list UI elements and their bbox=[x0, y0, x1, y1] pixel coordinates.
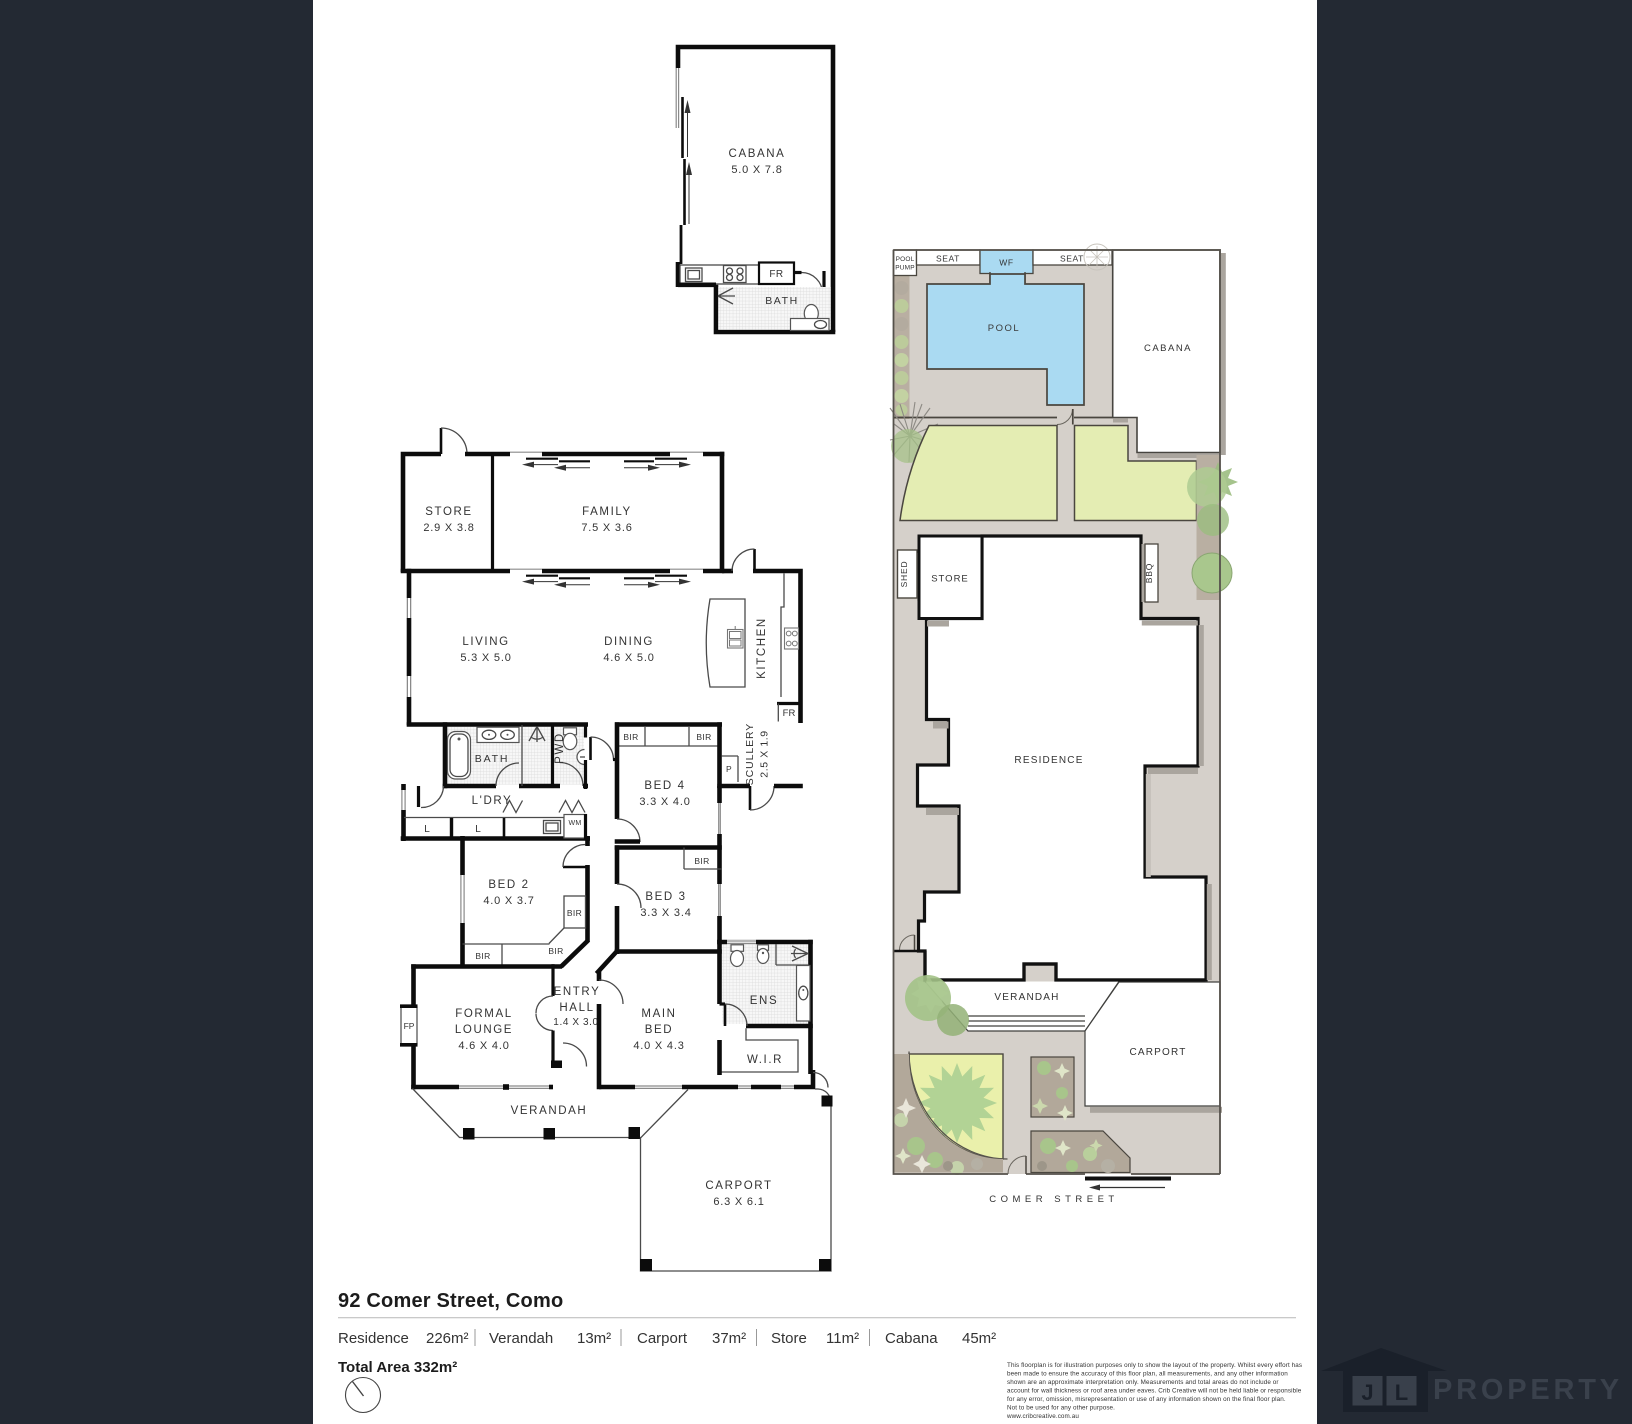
svg-text:Not to be used for any other p: Not to be used for any other purpose. bbox=[1007, 1405, 1115, 1412]
svg-text:2.9 X 3.8: 2.9 X 3.8 bbox=[423, 522, 474, 534]
svg-text:Verandah: Verandah bbox=[489, 1330, 553, 1347]
svg-text:BED 2: BED 2 bbox=[488, 879, 529, 891]
svg-text:This floorplan is for illustra: This floorplan is for illustration purpo… bbox=[1007, 1362, 1302, 1369]
svg-text:BED 3: BED 3 bbox=[645, 891, 686, 903]
svg-text:1.4 X 3.0: 1.4 X 3.0 bbox=[553, 1017, 598, 1028]
svg-text:DINING: DINING bbox=[604, 636, 654, 648]
svg-text:LOUNGE: LOUNGE bbox=[455, 1024, 513, 1036]
svg-text:PROPERTY: PROPERTY bbox=[1433, 1374, 1623, 1406]
svg-text:BIR: BIR bbox=[548, 946, 563, 956]
svg-text:WF: WF bbox=[999, 258, 1013, 268]
svg-text:HALL: HALL bbox=[559, 1002, 594, 1014]
svg-text:5.0 X 7.8: 5.0 X 7.8 bbox=[731, 164, 782, 176]
svg-text:STORE: STORE bbox=[931, 574, 969, 585]
svg-text:11m²: 11m² bbox=[826, 1330, 859, 1347]
svg-text:BATH: BATH bbox=[475, 753, 509, 765]
svg-text:BIR: BIR bbox=[567, 908, 582, 918]
svg-text:W.I.R: W.I.R bbox=[747, 1054, 783, 1066]
svg-text:5.3 X 5.0: 5.3 X 5.0 bbox=[460, 652, 511, 664]
svg-text:FR: FR bbox=[769, 269, 783, 280]
svg-text:BIR: BIR bbox=[475, 951, 490, 961]
svg-text:FORMAL: FORMAL bbox=[455, 1008, 513, 1020]
svg-text:BIR: BIR bbox=[623, 732, 638, 742]
svg-text:PWD: PWD bbox=[554, 732, 566, 764]
svg-text:3.3 X 4.0: 3.3 X 4.0 bbox=[639, 796, 690, 808]
svg-text:226m²: 226m² bbox=[426, 1330, 469, 1347]
svg-text:92 Comer Street, Como: 92 Comer Street, Como bbox=[338, 1290, 563, 1312]
svg-text:L: L bbox=[1395, 1380, 1408, 1405]
svg-text:L'DRY: L'DRY bbox=[472, 795, 513, 807]
svg-text:STORE: STORE bbox=[425, 506, 472, 518]
svg-text:Residence: Residence bbox=[338, 1330, 409, 1347]
svg-text:3.3 X 3.4: 3.3 X 3.4 bbox=[640, 907, 691, 919]
svg-text:Total Area 332m²: Total Area 332m² bbox=[338, 1359, 457, 1376]
svg-text:BBQ: BBQ bbox=[1144, 563, 1154, 583]
svg-text:Cabana: Cabana bbox=[885, 1330, 938, 1347]
svg-text:SEAT: SEAT bbox=[1060, 254, 1084, 264]
svg-text:BATH: BATH bbox=[765, 295, 799, 307]
svg-text:2.5 X 1.9: 2.5 X 1.9 bbox=[759, 730, 771, 777]
svg-text:SHED: SHED bbox=[899, 561, 909, 588]
svg-text:45m²: 45m² bbox=[962, 1330, 996, 1347]
svg-text:PUMP: PUMP bbox=[895, 265, 915, 272]
svg-text:37m²: 37m² bbox=[712, 1330, 746, 1347]
svg-text:VERANDAH: VERANDAH bbox=[511, 1105, 588, 1117]
svg-text:Store: Store bbox=[771, 1330, 807, 1347]
svg-text:CARPORT: CARPORT bbox=[1129, 1047, 1186, 1058]
svg-text:CABANA: CABANA bbox=[729, 148, 786, 160]
svg-text:FR: FR bbox=[783, 708, 796, 719]
svg-text:Carport: Carport bbox=[637, 1330, 688, 1347]
svg-text:13m²: 13m² bbox=[577, 1330, 611, 1347]
svg-text:BED: BED bbox=[645, 1024, 673, 1036]
svg-text:POOL: POOL bbox=[988, 323, 1020, 334]
svg-text:FAMILY: FAMILY bbox=[582, 506, 632, 518]
svg-text:P: P bbox=[726, 764, 732, 774]
svg-text:J: J bbox=[1361, 1380, 1373, 1405]
svg-text:www.cribcreative.com.au: www.cribcreative.com.au bbox=[1006, 1413, 1079, 1420]
svg-text:ENTRY: ENTRY bbox=[554, 986, 601, 998]
svg-text:4.6 X 5.0: 4.6 X 5.0 bbox=[603, 652, 654, 664]
svg-text:KITCHEN: KITCHEN bbox=[756, 617, 768, 679]
svg-text:BED 4: BED 4 bbox=[644, 780, 685, 792]
svg-text:been made to ensure the accura: been made to ensure the accuracy of this… bbox=[1007, 1371, 1288, 1378]
svg-text:4.6 X 4.0: 4.6 X 4.0 bbox=[458, 1040, 509, 1052]
svg-text:LIVING: LIVING bbox=[462, 636, 509, 648]
svg-text:POOL: POOL bbox=[896, 256, 915, 263]
svg-text:4.0 X 4.3: 4.0 X 4.3 bbox=[633, 1040, 684, 1052]
svg-text:CARPORT: CARPORT bbox=[705, 1180, 772, 1192]
svg-text:6.3 X 6.1: 6.3 X 6.1 bbox=[713, 1196, 764, 1208]
svg-text:WM: WM bbox=[568, 820, 581, 827]
svg-text:shown are an approximate inter: shown are an approximate interpretation … bbox=[1007, 1379, 1279, 1386]
svg-text:SCULLERY: SCULLERY bbox=[744, 723, 756, 785]
svg-text:account for wall thickness or: account for wall thickness or roof area … bbox=[1007, 1388, 1302, 1395]
svg-text:SEAT: SEAT bbox=[936, 254, 960, 264]
svg-text:7.5 X 3.6: 7.5 X 3.6 bbox=[581, 522, 632, 534]
svg-text:BIR: BIR bbox=[694, 856, 709, 866]
svg-text:FP: FP bbox=[404, 1021, 415, 1031]
svg-text:4.0 X 3.7: 4.0 X 3.7 bbox=[483, 895, 534, 907]
svg-text:for any error, omission, misre: for any error, omission, misrepresentati… bbox=[1007, 1396, 1286, 1403]
svg-text:BIR: BIR bbox=[696, 732, 711, 742]
svg-text:RESIDENCE: RESIDENCE bbox=[1014, 755, 1083, 766]
svg-text:CABANA: CABANA bbox=[1144, 343, 1192, 354]
svg-text:COMER STREET: COMER STREET bbox=[989, 1194, 1118, 1205]
svg-text:L: L bbox=[475, 824, 481, 835]
svg-text:L: L bbox=[424, 824, 430, 835]
svg-text:ENS: ENS bbox=[750, 995, 778, 1007]
svg-text:VERANDAH: VERANDAH bbox=[994, 992, 1059, 1003]
svg-text:MAIN: MAIN bbox=[641, 1008, 676, 1020]
